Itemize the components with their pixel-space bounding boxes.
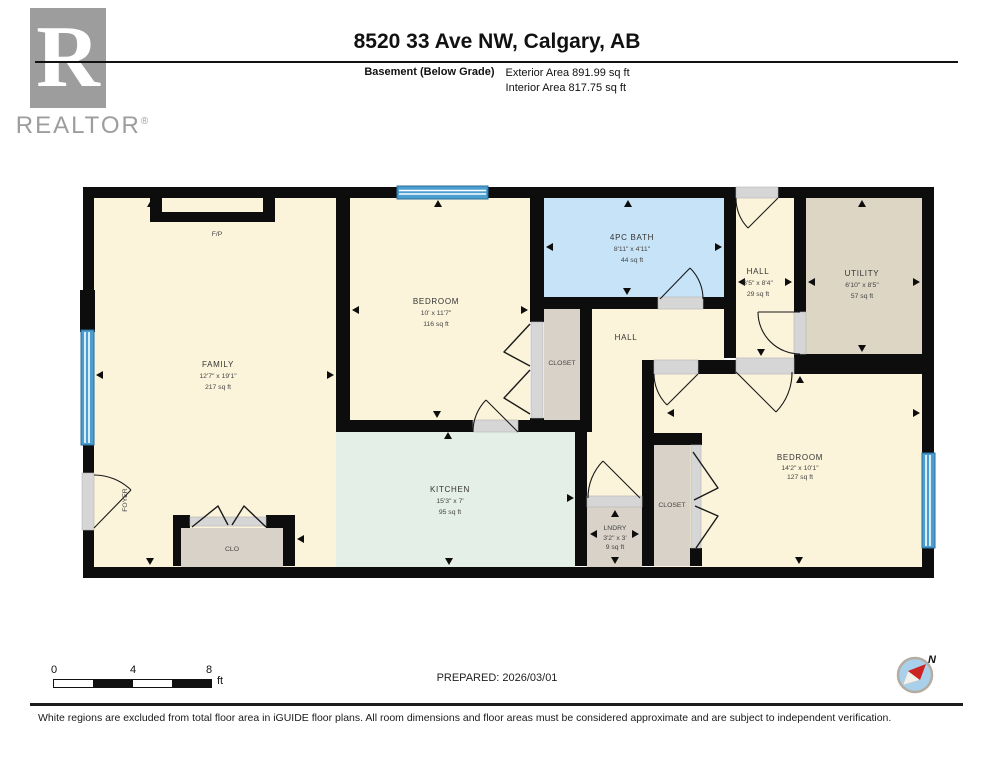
utility-label: UTILITY	[845, 269, 880, 278]
bath-area: 44 sq ft	[621, 257, 643, 264]
window-left-icon	[81, 330, 94, 445]
floor-plan-drawing: FAMILY 12'7" x 19'1" 217 sq ft F/P FOYER…	[78, 182, 938, 582]
exterior-area: Exterior Area 891.99 sq ft	[506, 67, 630, 79]
laundry-area: 9 sq ft	[606, 544, 625, 551]
laundry-dims: 3'2" x 3'	[603, 535, 627, 542]
title-divider	[35, 61, 958, 63]
bedroom-mid-label: BEDROOM	[413, 297, 459, 306]
kitchen-area: 95 sq ft	[439, 509, 461, 516]
closet-right-label: CLOSET	[658, 502, 685, 509]
bedroom-right-area: 127 sq ft	[787, 474, 813, 481]
utility-area: 57 sq ft	[851, 293, 873, 300]
window-top-icon	[397, 186, 488, 199]
bath-dims: 8'11" x 4'11"	[614, 246, 651, 253]
room-hall-small	[736, 198, 794, 358]
closet-mid-label: CLOSET	[548, 360, 575, 367]
family-label: FAMILY	[202, 360, 234, 369]
room-family	[94, 198, 336, 567]
room-bedroom-mid	[350, 198, 530, 420]
interior-area: Interior Area 817.75 sq ft	[506, 82, 626, 94]
foyer-label: FOYER	[122, 488, 129, 512]
kitchen-label: KITCHEN	[430, 485, 470, 494]
family-area: 217 sq ft	[205, 384, 231, 391]
page-title: 8520 33 Ave NW, Calgary, AB	[0, 30, 994, 54]
hall-center-label: HALL	[615, 333, 638, 342]
hall-small-area: 29 sq ft	[747, 291, 769, 298]
realtor-logo-text: REALTOR	[16, 112, 141, 139]
disclaimer-text: White regions are excluded from total fl…	[38, 712, 964, 724]
bath-label: 4PC BATH	[610, 233, 654, 242]
fireplace-label: F/P	[212, 231, 223, 238]
room-hall-center	[592, 309, 724, 362]
floor-plan-page: R REALTOR® 8520 33 Ave NW, Calgary, AB B…	[0, 0, 994, 768]
floor-label: Basement (Below Grade)	[364, 66, 494, 78]
bedroom-right-label: BEDROOM	[777, 453, 823, 462]
area-summary: Exterior Area 891.99 sq ft Interior Area…	[506, 66, 630, 96]
bedroom-right-dims: 14'2" x 10'1"	[781, 465, 819, 472]
utility-dims: 6'10" x 8'5"	[845, 282, 879, 289]
bedroom-mid-dims: 10' x 11'7"	[421, 310, 452, 317]
family-dims: 12'7" x 19'1"	[199, 373, 237, 380]
realtor-logo-wordmark: REALTOR®	[8, 112, 158, 140]
registered-mark: ®	[141, 116, 150, 127]
footer-divider	[30, 703, 963, 706]
fireplace-recess	[162, 198, 263, 212]
floor-summary: Basement (Below Grade) Exterior Area 891…	[0, 66, 994, 96]
prepared-date: PREPARED: 2026/03/01	[0, 672, 994, 684]
compass-icon: N	[892, 650, 942, 698]
bedroom-mid-area: 116 sq ft	[423, 321, 449, 328]
hall-small-label: HALL	[747, 267, 770, 276]
laundry-label: LNDRY	[604, 525, 627, 532]
clo-label: CLO	[225, 546, 239, 553]
window-right-icon	[922, 453, 935, 548]
room-hall-corridor	[587, 360, 642, 507]
hall-small-dims: 3'5" x 8'4"	[743, 280, 773, 287]
compass-north-label: N	[928, 654, 937, 666]
kitchen-dims: 15'3" x 7'	[436, 498, 463, 505]
